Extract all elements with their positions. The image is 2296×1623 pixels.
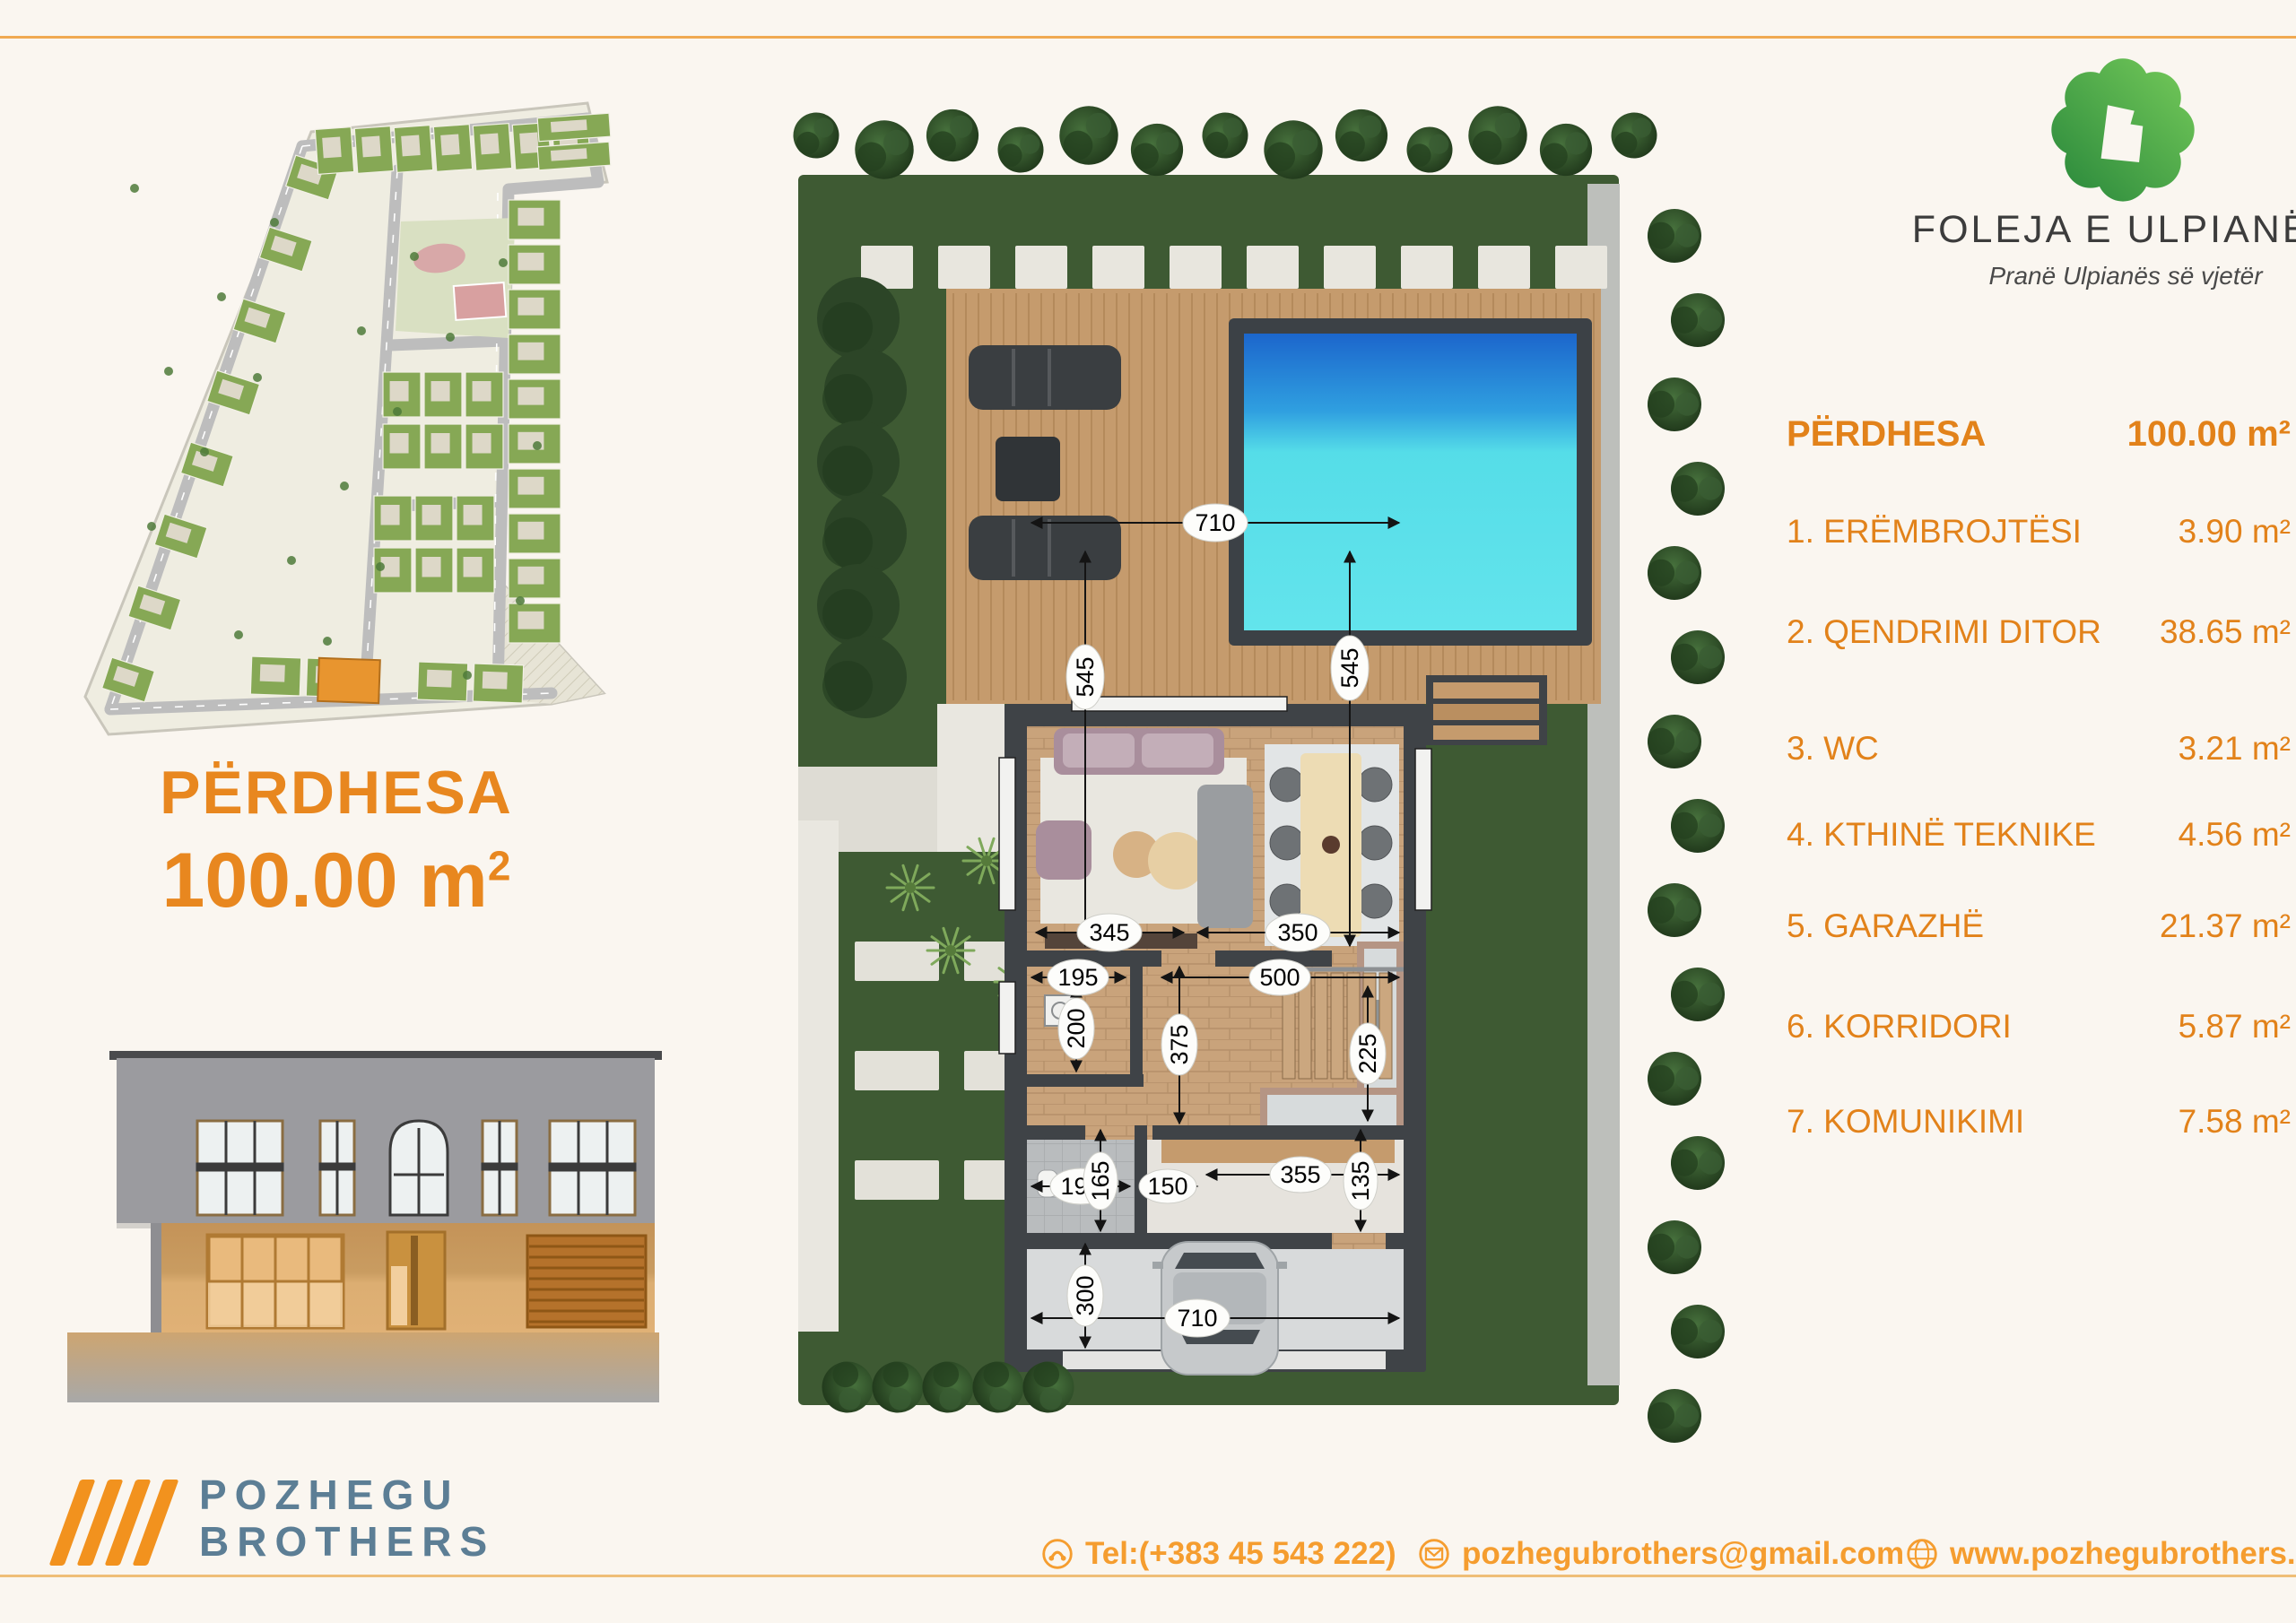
- sofa-cushion: [1063, 733, 1135, 768]
- phone-number: Tel:(+383 45 543 222): [1085, 1536, 1396, 1572]
- bottom-divider-rule: [0, 1575, 2296, 1577]
- sofa-gray: [1197, 785, 1253, 928]
- globe-icon: [1903, 1535, 1941, 1573]
- room-area: 38.65 m²: [2160, 613, 2291, 651]
- dim-label: 375: [1166, 1024, 1193, 1064]
- email-address: pozhegubrothers@gmail.com: [1462, 1536, 1904, 1572]
- legend-row: 5. GARAZHË 21.37 m²: [1787, 907, 2291, 945]
- coffee-table: [1148, 832, 1205, 890]
- floor-plan: 710 545 545 345 350 195 500 200 225 375 …: [776, 49, 1762, 1475]
- website-contact: www.pozhegubrothers.com: [1903, 1535, 2296, 1573]
- elevation-upper-windows: [197, 1121, 635, 1215]
- floor-area: 100.00 m2: [90, 837, 583, 925]
- room-area: 3.21 m²: [2179, 730, 2291, 768]
- dim-label: 165: [1087, 1160, 1114, 1201]
- dim-label: 545: [1072, 656, 1099, 697]
- sofa-cushion: [1142, 733, 1213, 768]
- dim-label: 355: [1280, 1161, 1320, 1188]
- project-logo-icon: [2047, 56, 2199, 208]
- legend-row: 6. KORRIDORI 5.87 m²: [1787, 1008, 2291, 1046]
- entry-sidelight: [391, 1266, 407, 1325]
- room-label: 2. QENDRIMI DITOR: [1787, 613, 2101, 651]
- gravel-terrace: [937, 704, 1004, 852]
- dim-label: 150: [1147, 1173, 1187, 1200]
- title-block: PËRDHESA 100.00 m2: [90, 758, 583, 925]
- company-name-bottom: BROTHERS: [199, 1519, 495, 1566]
- company-name-top: POZHEGU: [199, 1472, 495, 1519]
- room-area: 21.37 m²: [2160, 907, 2291, 945]
- website-url: www.pozhegubrothers.com: [1950, 1536, 2296, 1572]
- dim-label: 545: [1336, 647, 1363, 688]
- room-area: 3.90 m²: [2179, 513, 2291, 551]
- entry-door-handleboard: [411, 1236, 418, 1325]
- dim-label: 135: [1347, 1160, 1374, 1201]
- porch-step: [1433, 704, 1539, 720]
- floor-area-value: 100.00 m: [162, 838, 488, 924]
- legend-header-label: PËRDHESA: [1787, 414, 1986, 455]
- floor-title: PËRDHESA: [90, 758, 583, 828]
- project-tagline: Pranë Ulpianës së vjetër: [1874, 262, 2296, 291]
- elevation-side-wall: [151, 1223, 161, 1332]
- gravel-path-left: [798, 820, 839, 1332]
- armchair: [1036, 820, 1091, 880]
- site-highlighted-unit: [317, 658, 380, 703]
- garage-door: [527, 1236, 646, 1327]
- dim-label: 345: [1089, 919, 1129, 946]
- phone-icon: [1039, 1535, 1076, 1573]
- legend-row: 7. KOMUNIKIMI 7.58 m²: [1787, 1103, 2291, 1141]
- email-icon: [1415, 1535, 1453, 1573]
- brochure-page: { "project": { "name": "FOLEJA E ULPIANË…: [0, 0, 2296, 1623]
- elevation-ground-openings: [208, 1232, 646, 1329]
- porch-step: [1433, 725, 1539, 740]
- porch-step: [1433, 682, 1539, 699]
- legend-row: 3. WC 3.21 m²: [1787, 730, 2291, 768]
- dim-label: 225: [1354, 1033, 1381, 1073]
- phone-contact: Tel:(+383 45 543 222): [1039, 1535, 1396, 1573]
- room-label: 7. KOMUNIKIMI: [1787, 1103, 2024, 1141]
- top-divider-rule: [0, 36, 2296, 39]
- dim-label: 350: [1277, 919, 1318, 946]
- legend-header: PËRDHESA 100.00 m²: [1787, 414, 2291, 455]
- company-logo: POZHEGU BROTHERS: [65, 1472, 495, 1566]
- pool-water: [1244, 334, 1577, 630]
- dim-label: 500: [1259, 964, 1300, 991]
- project-name: FOLEJA E ULPIANËS: [1874, 208, 2296, 252]
- floor-area-exponent: 2: [488, 842, 511, 889]
- elevation-ground: [67, 1332, 659, 1402]
- room-label: 3. WC: [1787, 730, 1879, 768]
- legend-row: 1. ERËMBROJTËSI 3.90 m²: [1787, 513, 2291, 551]
- kitchen-island-top: [1267, 1095, 1396, 1127]
- building-elevation: [54, 1031, 691, 1444]
- table-centerpiece: [1322, 836, 1340, 854]
- room-label: 5. GARAZHË: [1787, 907, 1984, 945]
- site-tennis-court: [454, 282, 507, 320]
- dim-label: 200: [1063, 1008, 1090, 1048]
- site-plan-map: [49, 76, 632, 740]
- company-name: POZHEGU BROTHERS: [199, 1472, 495, 1565]
- legend-header-area: 100.00 m²: [2127, 414, 2291, 455]
- dim-label: 300: [1072, 1275, 1099, 1315]
- room-label: 6. KORRIDORI: [1787, 1008, 2012, 1046]
- room-area: 5.87 m²: [2179, 1008, 2291, 1046]
- legend-row: 2. QENDRIMI DITOR 38.65 m²: [1787, 613, 2291, 651]
- room-label: 4. KTHINË TEKNIKE: [1787, 816, 2096, 854]
- room-label: 1. ERËMBROJTËSI: [1787, 513, 2082, 551]
- dim-label: 710: [1195, 509, 1235, 536]
- room-area: 4.56 m²: [2179, 816, 2291, 854]
- dim-label: 710: [1177, 1305, 1217, 1332]
- dim-label: 195: [1057, 964, 1098, 991]
- logo-slashes-icon: [65, 1480, 176, 1566]
- legend-row: 4. KTHINË TEKNIKE 4.56 m²: [1787, 816, 2291, 854]
- deck-table: [996, 437, 1060, 501]
- email-contact: pozhegubrothers@gmail.com: [1415, 1535, 1904, 1573]
- room-area: 7.58 m²: [2179, 1103, 2291, 1141]
